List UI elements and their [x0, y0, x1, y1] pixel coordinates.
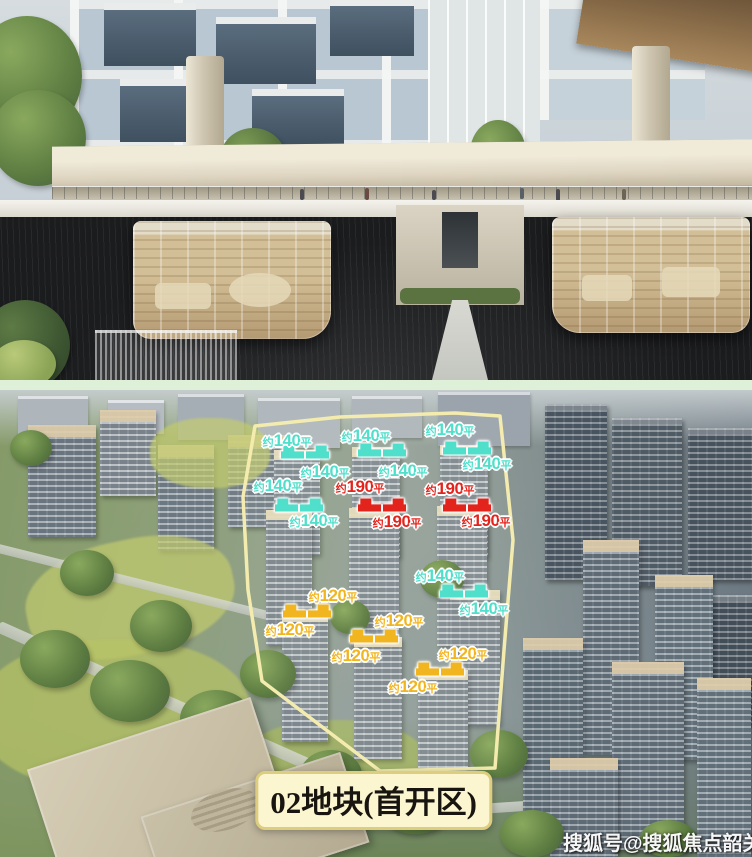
unit-size-label: 约140平 [463, 455, 512, 473]
unit-size-label: 约190平 [373, 513, 422, 531]
unit-size-label: 约120平 [389, 678, 438, 696]
unit-size-label: 约120平 [439, 645, 488, 663]
lounge-furniture [582, 275, 632, 301]
unit-size-label: 约140平 [416, 567, 465, 585]
unit-size-label: 约140平 [460, 600, 509, 618]
glass-pavilion-right [552, 217, 750, 333]
unit-size-label: 约190平 [426, 480, 475, 498]
waterfall [95, 330, 237, 380]
balcony-window [330, 6, 414, 56]
unit-size-label: 约120平 [375, 612, 424, 630]
promo-image: 约140平约140平约140平约140平约140平约140平约140平约140平… [0, 0, 752, 857]
entry-door [442, 212, 478, 268]
terrace-railing [52, 186, 752, 199]
unit-size-label: 约140平 [263, 432, 312, 450]
roof-marker-cyan [443, 442, 491, 455]
person-figure [300, 189, 304, 200]
unit-size-label: 约140平 [342, 427, 391, 445]
roof-marker-red [443, 499, 491, 512]
roof-marker-cyan [440, 585, 488, 598]
watermark-text: 搜狐号@搜狐焦点韶关站 [563, 827, 752, 856]
roof-marker-red [358, 499, 406, 512]
unit-size-label: 约120平 [332, 647, 381, 665]
unit-size-label: 约190平 [336, 478, 385, 496]
unit-size-label: 约140平 [290, 512, 339, 530]
image-divider [0, 380, 752, 390]
unit-size-label: 约140平 [379, 462, 428, 480]
site-aerial-photo: 约140平约140平约140平约140平约140平约140平约140平约140平… [0, 390, 752, 857]
roof-marker-yellow [350, 630, 398, 643]
roof-marker-yellow [416, 663, 464, 676]
roof-marker-yellow [283, 605, 331, 618]
person-figure [432, 190, 436, 200]
roof-marker-cyan [275, 499, 323, 512]
lounge-furniture [155, 283, 211, 309]
unit-size-label: 约190平 [462, 512, 511, 530]
unit-size-label: 约120平 [309, 587, 358, 605]
person-figure [365, 188, 369, 200]
lounge-furniture [662, 267, 720, 297]
unit-size-label: 约140平 [426, 421, 475, 439]
unit-size-label: 约140平 [254, 477, 303, 495]
unit-size-label: 约120平 [266, 621, 315, 639]
round-sofa [229, 273, 291, 307]
roof-marker-cyan [358, 444, 406, 457]
pavilion-glazing [552, 217, 750, 333]
site-plot-label: 02地块(首开区) [255, 771, 492, 830]
person-figure [622, 189, 626, 200]
balcony-window [104, 10, 196, 66]
balcony-window [216, 24, 316, 84]
clubhouse-rendering-photo [0, 0, 752, 380]
pavilion-glazing [133, 221, 331, 339]
glass-pavilion-left [133, 221, 331, 339]
person-figure [520, 188, 524, 199]
